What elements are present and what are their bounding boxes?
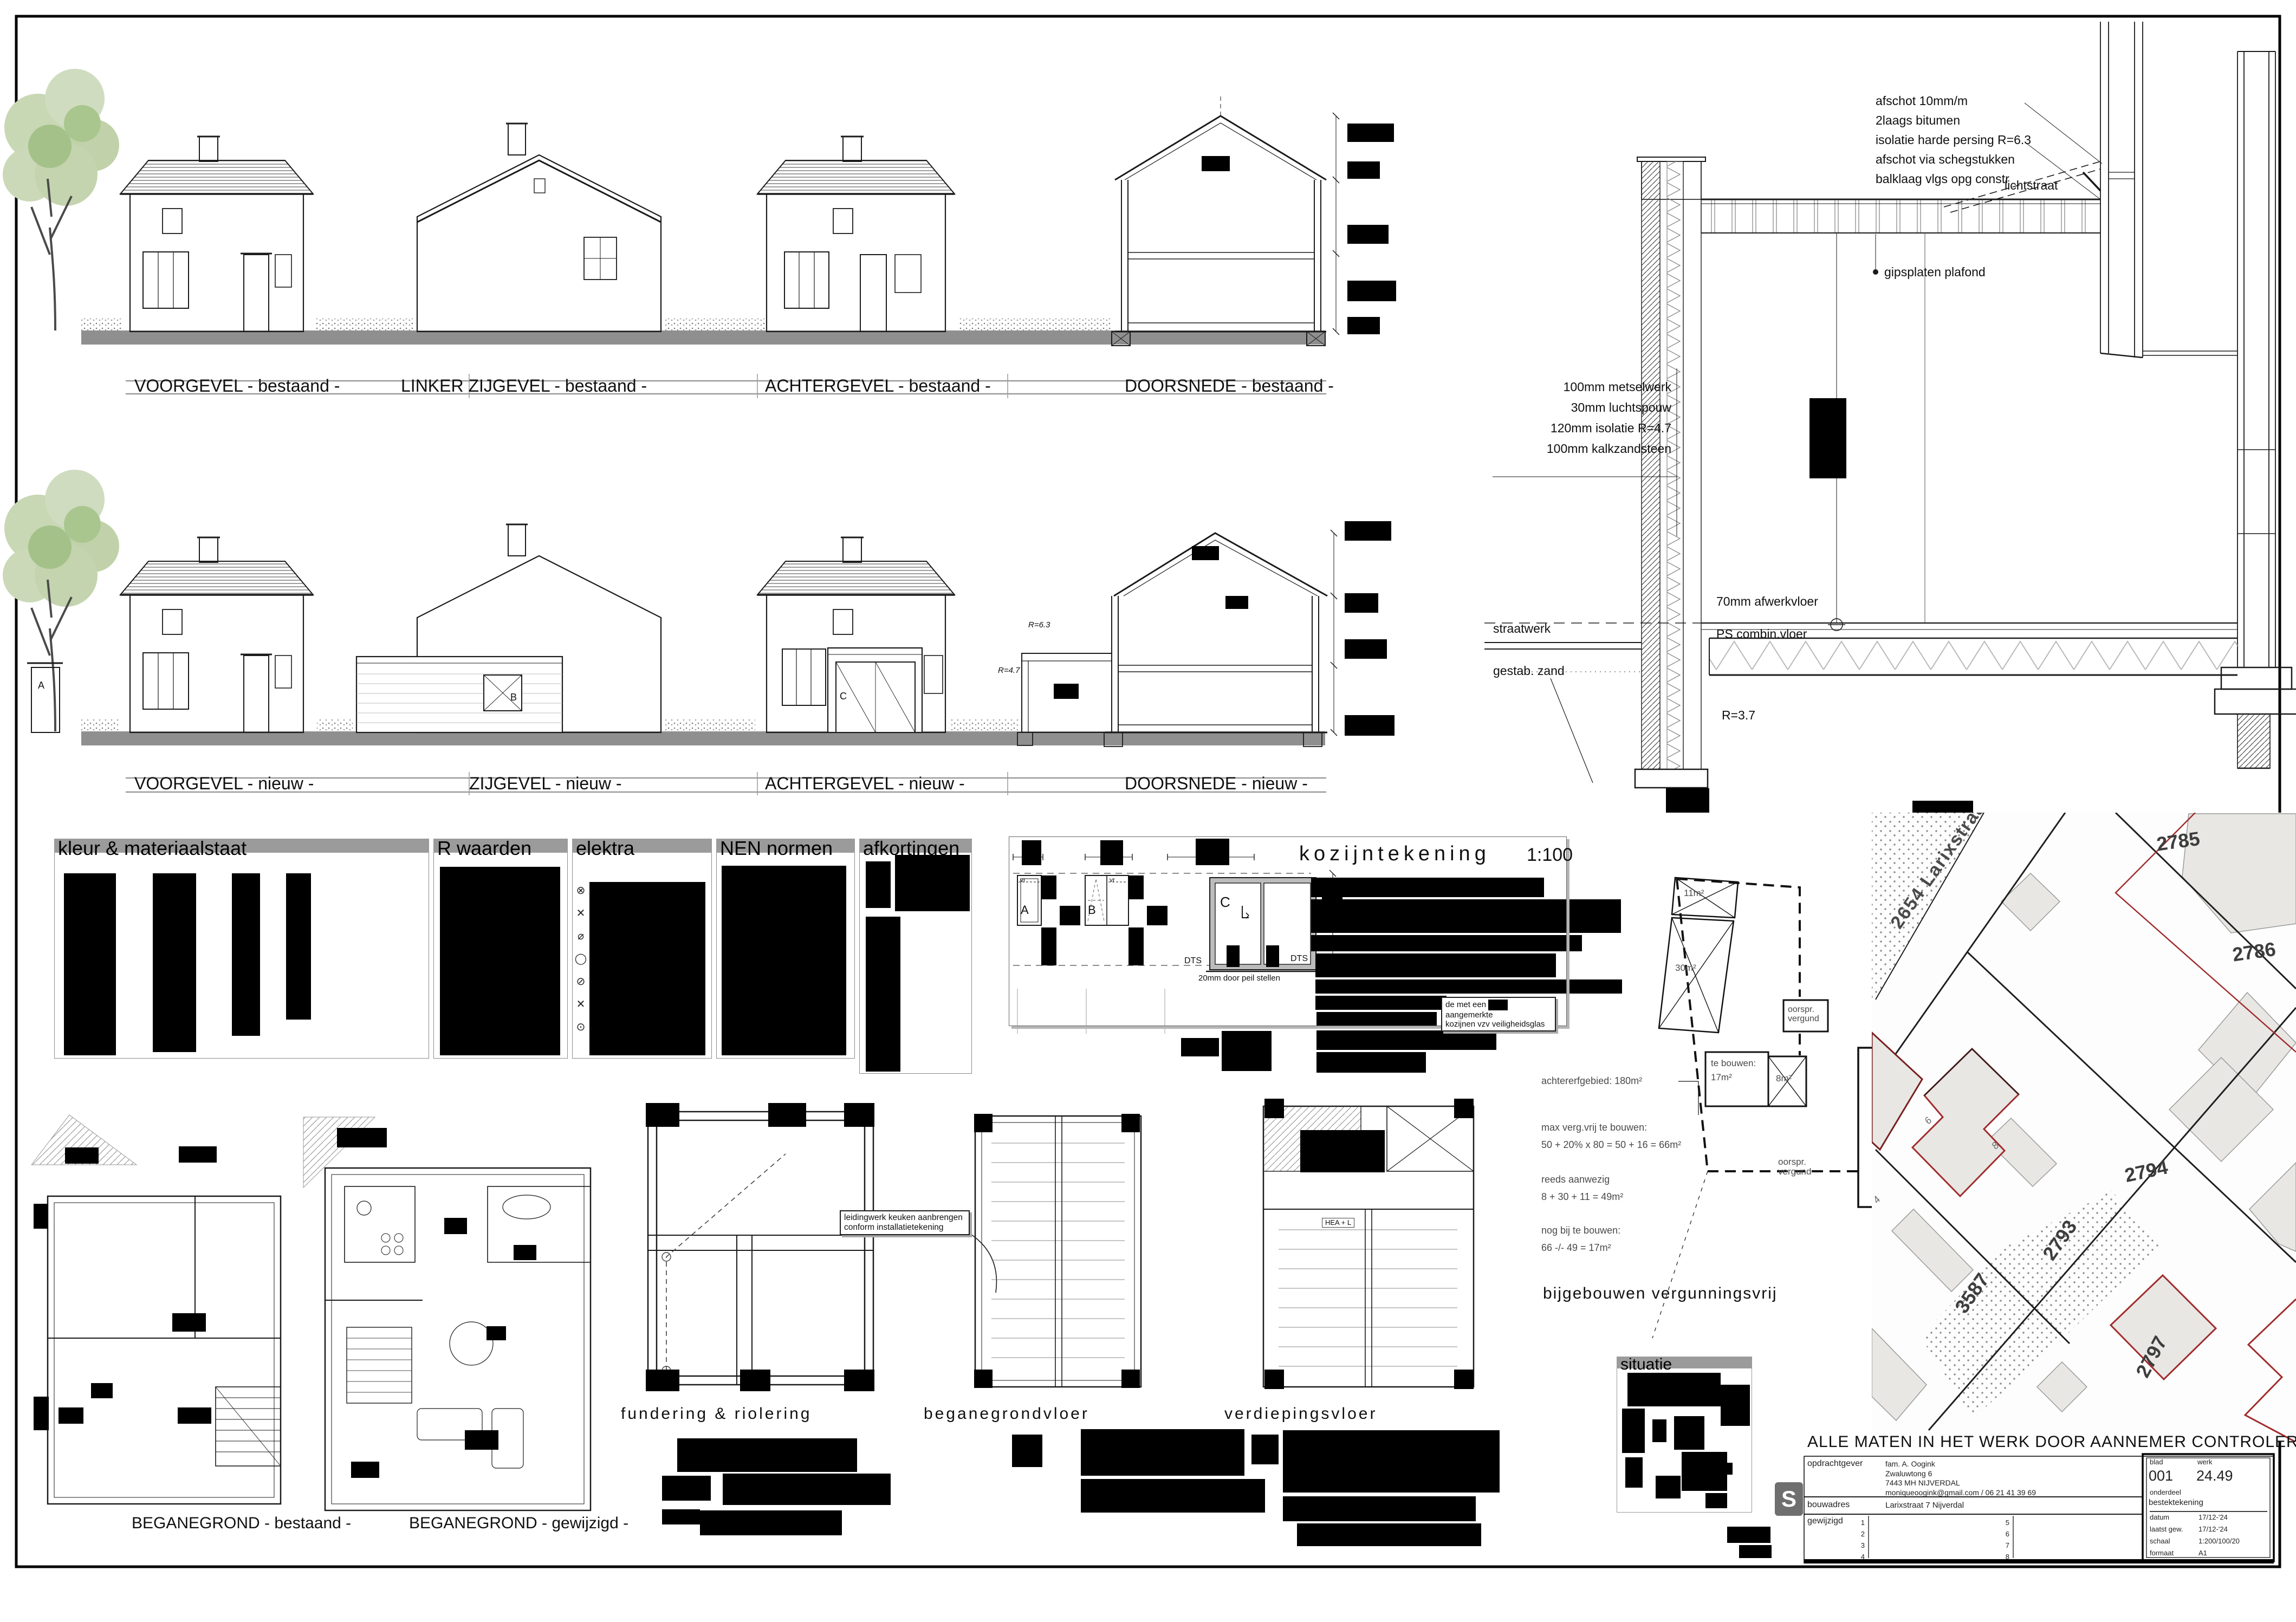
laatst-gew-value: 17/12-'24	[2198, 1526, 2228, 1533]
te-bouwen-value: 17m²	[1711, 1073, 1732, 1082]
panel-title: NEN normen	[720, 837, 833, 860]
elevation-label: LINKER ZIJGEVEL - bestaand -	[401, 377, 647, 395]
rev-num: 1	[1857, 1517, 1865, 1528]
plan-title-fundering: fundering & riolering	[621, 1405, 812, 1423]
bijgebouwen-line: reeds aanwezig	[1541, 1175, 1610, 1185]
note-line: afschot 10mm/m	[1876, 91, 2031, 111]
bijgebouwen-line: 50 + 20% x 80 = 50 + 16 = 66m²	[1541, 1140, 1681, 1150]
architect-logo: S	[1775, 1482, 1803, 1516]
client-city: 7443 MH NIJVERDAL	[1885, 1478, 2036, 1488]
rev-num: 8	[2002, 1551, 2009, 1562]
legend-panel-materiaalstaat: kleur & materiaalstaat	[54, 839, 429, 1059]
plan-title-beganegrondvloer: beganegrondvloer	[924, 1405, 1089, 1423]
note-line: isolatie harde persing R=6.3	[1876, 130, 2031, 150]
legend-panel-afkortingen: afkortingen	[859, 839, 972, 1074]
plan-title-verdiepingsvloer: verdiepingsvloer	[1224, 1405, 1377, 1423]
redacted-symbol	[1488, 1000, 1508, 1010]
oorspr-line: oorspr.	[1788, 1005, 1819, 1015]
kozijn-letter-a: A	[1021, 904, 1029, 916]
kitchen-note-line: leidingwerk keuken aanbrengen	[844, 1213, 965, 1223]
elevation-label: ZIJGEVEL - nieuw -	[469, 775, 622, 793]
kozijn-scale: 1:100	[1527, 845, 1573, 865]
bijgebouwen-line: 66 -/- 49 = 17m²	[1541, 1243, 1611, 1253]
situatie-panel: situatie	[1617, 1357, 1752, 1513]
bouwadres-label: bouwadres	[1807, 1501, 1850, 1510]
bijgebouwen-line: 8 + 30 + 11 = 49m²	[1541, 1192, 1623, 1202]
datum-value: 17/12-'24	[2198, 1514, 2228, 1521]
footer-note: ALLE MATEN IN HET WERK DOOR AANNEMER CON…	[1807, 1433, 2296, 1451]
kozijn-marker-c: C	[840, 691, 847, 702]
legend-panel-rwaarden: R waarden	[433, 839, 568, 1059]
situatie-title: situatie	[1620, 1355, 1672, 1374]
plan-label-gewijzigd: BEGANEGROND - gewijzigd -	[409, 1515, 628, 1532]
drawing-sheet: 2785 2786 2794 2793 3587 3588 2797 2654 …	[0, 0, 2296, 1622]
hea-note: HEA + L	[1322, 1218, 1354, 1228]
kitchen-note-box: leidingwerk keuken aanbrengen conform in…	[840, 1210, 970, 1235]
kozijn-dts: DTS	[1290, 955, 1308, 964]
oorspr-line: vergund	[1788, 1015, 1819, 1024]
kozijn-dts: DTS	[1184, 957, 1202, 966]
elektra-symbol-icon: ✕	[574, 993, 588, 1016]
formaat-value: A1	[2198, 1549, 2207, 1557]
client-contact: moniqueoogink@gmail.com / 06 21 41 39 69	[1885, 1488, 2036, 1498]
blad-label: blad	[2150, 1458, 2163, 1466]
panel-title: kleur & materiaalstaat	[58, 837, 247, 860]
elevations-nieuw-art	[27, 524, 1337, 795]
onderdeel-value: bestektekening	[2149, 1498, 2203, 1507]
te-bouwen-label: te bouwen:	[1711, 1059, 1756, 1068]
r-value-label: R=6.3	[1028, 621, 1050, 630]
bijgebouwen-heading: bijgebouwen vergunningsvrij	[1543, 1285, 1778, 1302]
oorspr-line: oorspr.	[1778, 1157, 1811, 1167]
schaal-value: 1:200/100/20	[2198, 1537, 2240, 1545]
detail-wall-notes: 100mm metselwerk 30mm luchtspouw 120mm i…	[1493, 377, 1671, 459]
cadastral-map: 2785 2786 2794 2793 3587 3588 2797 2654 …	[1872, 813, 2296, 1441]
elevation-label: VOORGEVEL - bestaand -	[134, 377, 340, 395]
rev-num: 2	[1857, 1528, 1865, 1540]
datum-label: datum	[2150, 1514, 2169, 1521]
elevation-label: DOORSNEDE - bestaand -	[1125, 377, 1334, 395]
r-vloer-label: R=3.7	[1722, 709, 1755, 722]
elektra-symbol-icon: ⌀	[574, 925, 588, 948]
elektra-symbol-icon: ⊙	[574, 1016, 588, 1039]
glass-note-line2: kozijnen vzv veiligheidsglas	[1445, 1020, 1552, 1029]
opdrachtgever-label: opdrachtgever	[1807, 1459, 1863, 1469]
schaal-label: schaal	[2150, 1537, 2170, 1545]
bijgebouwen-line: achtererfgebied: 180m²	[1541, 1076, 1642, 1086]
laatst-gew-label: laatst gew.	[2150, 1526, 2183, 1533]
peil-note: 20mm door peil stellen	[1198, 974, 1280, 983]
zand-label: gestab. zand	[1493, 664, 1565, 677]
bijgebouwen-line: nog bij te bouwen:	[1541, 1225, 1620, 1236]
combivloer-label: PS combin.vloer	[1716, 627, 1807, 640]
rev-numbers-right: 5 6 7 8	[2002, 1517, 2009, 1562]
kozijn-marker-b: B	[510, 692, 517, 703]
elevations-bestaand-art	[81, 96, 1339, 398]
rev-numbers-left: 1 2 3 4	[1857, 1517, 1865, 1562]
kozijn-title: kozijntekening	[1299, 843, 1490, 865]
note-line: 100mm kalkzandsteen	[1493, 438, 1671, 459]
glass-note-text: de met een	[1445, 1000, 1486, 1009]
area-label-11: 11m²	[1684, 888, 1704, 898]
r-value-label: R=4.7	[998, 666, 1020, 675]
oorspr-line: vergund	[1778, 1167, 1811, 1177]
opdrachtgever-value: fam. A. Oogink Zwaluwtong 6 7443 MH NIJV…	[1885, 1459, 2036, 1497]
rev-num: 5	[2002, 1517, 2009, 1528]
elektra-symbol-icon: ⊗	[574, 879, 588, 902]
blad-value: 001	[2149, 1468, 2173, 1484]
note-line: 2laags bitumen	[1876, 111, 2031, 130]
rev-num: 6	[2002, 1528, 2009, 1540]
glass-note-text: aangemerkte	[1445, 1010, 1493, 1020]
elevation-label: VOORGEVEL - nieuw -	[134, 775, 314, 793]
gewijzigd-label: gewijzigd	[1807, 1517, 1843, 1526]
onderdeel-label: onderdeel	[2150, 1489, 2181, 1496]
legend-panel-elektra: elektra ⊗ ✕ ⌀ ◯ ⊘ ✕ ⊙	[572, 839, 712, 1059]
straatwerk-label: straatwerk	[1493, 622, 1551, 635]
oorspr-vergund-box-label: oorspr. vergund	[1788, 1005, 1819, 1024]
plan-label-bestaand: BEGANEGROND - bestaand -	[132, 1515, 351, 1532]
tree-drawing	[3, 69, 119, 330]
kozijn-vr: vr	[1110, 877, 1115, 884]
rev-num: 3	[1857, 1540, 1865, 1551]
glass-note-box: de met eenaangemerkte kozijnen vzv veili…	[1441, 997, 1556, 1031]
werk-label: werk	[2197, 1458, 2212, 1466]
note-line: 120mm isolatie R=4.7	[1493, 418, 1671, 438]
formaat-label: formaat	[2150, 1549, 2174, 1557]
note-line: afschot via schegstukken	[1876, 150, 2031, 169]
bouwadres-value: Larixstraat 7 Nijverdal	[1885, 1501, 1964, 1510]
note-line: 100mm metselwerk	[1493, 377, 1671, 397]
elevation-label: ACHTERGEVEL - nieuw -	[765, 775, 965, 793]
elevation-label: ACHTERGEVEL - bestaand -	[765, 377, 991, 395]
elektra-symbol-icon: ⊘	[574, 970, 588, 993]
elevation-label: DOORSNEDE - nieuw -	[1125, 775, 1308, 793]
glass-note-line1: de met eenaangemerkte	[1445, 1000, 1552, 1020]
bijgebouwen-line: max verg.vrij te bouwen:	[1541, 1123, 1647, 1133]
legend-panel-nen: NEN normen	[716, 839, 855, 1059]
kozijn-vr: vr	[1020, 877, 1026, 884]
oorspr-vergund-label2: oorspr. vergund	[1778, 1157, 1811, 1177]
afwerkvloer-label: 70mm afwerkvloer	[1716, 595, 1818, 608]
rev-num: 4	[1857, 1551, 1865, 1562]
kitchen-note-line: conform installatietekening	[844, 1223, 965, 1232]
client-street: Zwaluwtong 6	[1885, 1469, 2036, 1479]
panel-title: elektra	[576, 837, 634, 860]
elektra-symbol-icon: ◯	[574, 948, 588, 970]
note-line: 30mm luchtspouw	[1493, 397, 1671, 418]
detail-roof-notes: afschot 10mm/m 2laags bitumen isolatie h…	[1876, 91, 2031, 189]
panel-title: R waarden	[437, 837, 531, 860]
werk-value: 24.49	[2196, 1468, 2233, 1484]
kozijn-marker-a: A	[38, 680, 44, 691]
area-label-30: 30m²	[1675, 963, 1696, 973]
panel-title: afkortingen	[863, 837, 959, 860]
map-art	[1872, 813, 2296, 1441]
kozijn-letter-b: B	[1088, 904, 1096, 916]
area-label-8: 8m²	[1776, 1074, 1792, 1084]
plafond-label: gipsplaten plafond	[1884, 265, 1986, 278]
rev-num: 7	[2002, 1540, 2009, 1551]
elektra-symbol-icon: ✕	[574, 902, 588, 925]
elektra-symbols: ⊗ ✕ ⌀ ◯ ⊘ ✕ ⊙	[574, 879, 588, 1039]
client-name: fam. A. Oogink	[1885, 1459, 2036, 1469]
kozijn-letter-c: C	[1220, 895, 1230, 910]
lichtstraat-label: lichtstraat	[2005, 179, 2058, 192]
